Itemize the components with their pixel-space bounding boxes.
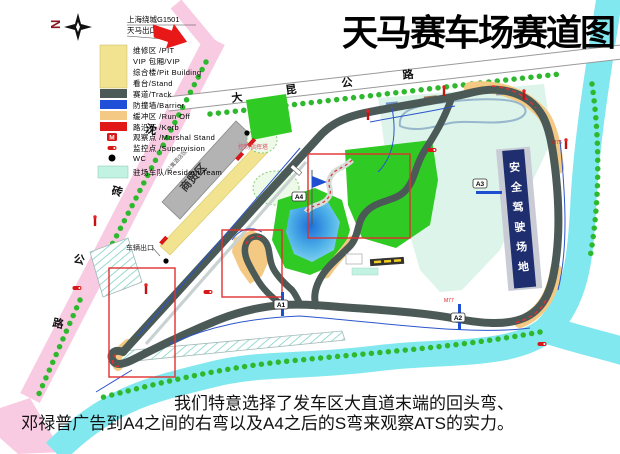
- marshal-label: M77: [444, 298, 454, 304]
- marshal-stand-icon: M: [107, 133, 117, 142]
- track-map-page: 安 全 驾 驶 场 地: [0, 0, 620, 454]
- legend-swatch-resident: [98, 166, 128, 178]
- resident-stand: [352, 268, 378, 275]
- caption-line1: 我们特意选择了发车区大直道末端的回头弯、: [0, 394, 514, 414]
- legend-label: VIP 包厢/VIP: [133, 56, 180, 66]
- legend-swatch-yellow: [100, 45, 127, 88]
- highway-note-line2: 天马出口: [127, 25, 157, 35]
- road-label-da: 大: [231, 90, 244, 105]
- svg-text:M: M: [109, 135, 114, 142]
- legend-label: 路沿石 /Kerb: [133, 122, 179, 132]
- flag-icon: [312, 176, 327, 188]
- page-title: 天马赛车场赛道图: [342, 4, 614, 56]
- corner-a3: A3: [476, 181, 485, 188]
- safe-driving-char: 驾: [511, 199, 524, 214]
- legend-label: 综合楼/Pit Building: [133, 67, 202, 77]
- highway-note-line1: 上海绕城G1501: [127, 14, 180, 24]
- legend-label: WC: [133, 154, 146, 163]
- legend-label: 缓冲区 /Run Off: [133, 111, 191, 121]
- caption: 我们特意选择了发车区大直道末端的回头弯、 邓禄普广告到A4之间的右弯以及A4之后…: [0, 394, 514, 434]
- legend-swatch-kerb: [100, 122, 127, 131]
- road-label-kun: 昆: [285, 83, 298, 97]
- legend-label: 维修区 /PIT: [133, 45, 175, 55]
- small-sign: [346, 254, 362, 264]
- road-label-gong: 公: [341, 76, 354, 90]
- legend-swatch-barrier: [100, 100, 127, 109]
- circuit-map: 安 全 驾 驶 场 地: [0, 0, 620, 454]
- compass-n-label: N: [48, 20, 63, 29]
- legend-label: 观察点 /Marshal Stand: [133, 132, 215, 142]
- supervision-icon: [108, 146, 117, 150]
- corner-a4: A4: [295, 194, 304, 201]
- safe-driving-char: 场: [515, 239, 527, 254]
- legend-label: 监控点 /Supervision: [133, 143, 205, 153]
- vehicle-exit-label: 车辆出口: [126, 243, 154, 252]
- caption-line2: 邓禄普广告到A4之间的右弯以及A4之后的S弯来观察ATS的实力。: [0, 414, 514, 434]
- legend-label: 看台/Stand: [133, 78, 173, 88]
- safe-driving-char: 地: [517, 259, 529, 274]
- green-area: [246, 94, 292, 140]
- wc-dot-icon: [109, 155, 116, 162]
- marshal-label: M75: [552, 140, 562, 146]
- safe-driving-char: 安: [509, 160, 521, 175]
- legend-swatch-runoff: [100, 111, 127, 120]
- corner-a2: A2: [454, 315, 463, 322]
- road-label-gong2: 公: [72, 252, 85, 267]
- legend-label: 驻场车队/Resident Team: [133, 167, 222, 177]
- ad-boards: [346, 254, 404, 275]
- legend-label: 防撞墙/Barrier: [133, 100, 185, 110]
- control-tower-label: 控制指挥塔: [238, 143, 268, 151]
- safe-driving-char: 全: [509, 179, 523, 194]
- legend-swatch-track: [100, 89, 127, 98]
- compass-icon: N: [48, 13, 92, 41]
- corner-a1: A1: [277, 302, 286, 309]
- legend-label: 赛道/Track: [133, 89, 172, 99]
